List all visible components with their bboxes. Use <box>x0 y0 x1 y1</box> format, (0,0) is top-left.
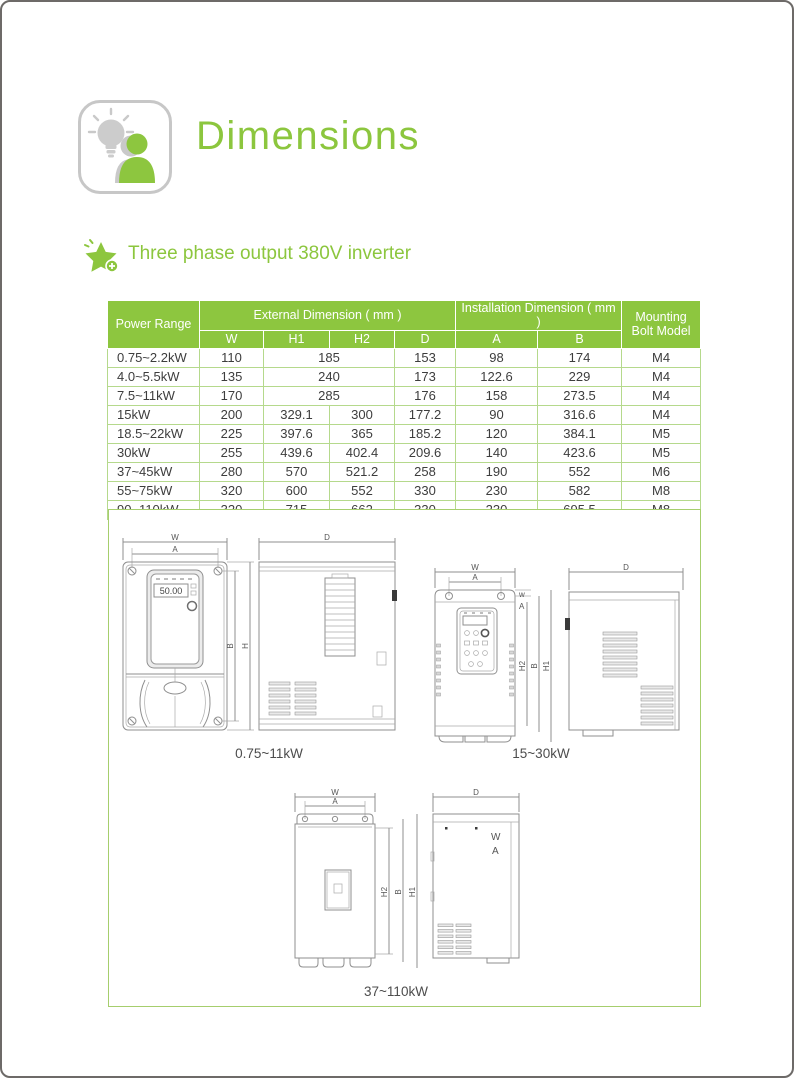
col-header-power-range: Power Range <box>108 301 200 349</box>
cell-power: 15kW <box>108 405 200 424</box>
dim-label-h1: H1 <box>408 886 417 897</box>
cell-power: 4.0~5.5kW <box>108 367 200 386</box>
cell-d: 330 <box>395 481 456 500</box>
cell-bolt: M4 <box>622 367 701 386</box>
dim-label-a: A <box>472 573 478 582</box>
dim-label-w: W <box>331 788 339 797</box>
drawing-medium-side-view: D <box>565 566 691 748</box>
drawing-label-medium: 15~30kW <box>431 746 651 761</box>
dim-label-b: B <box>394 889 403 894</box>
cell-w: 135 <box>200 367 264 386</box>
cell-bolt: M5 <box>622 443 701 462</box>
cell-h1: 329.1 <box>264 405 330 424</box>
cell-b: 552 <box>538 462 622 481</box>
dim-label-d: D <box>623 563 629 572</box>
dim-label-small-a: A <box>519 602 525 611</box>
cell-a: 122.6 <box>456 367 538 386</box>
cell-power: 7.5~11kW <box>108 386 200 405</box>
cell-b: 273.5 <box>538 386 622 405</box>
col-header-h2: H2 <box>330 330 395 348</box>
cell-b: 174 <box>538 348 622 367</box>
dim-label-small-w: w <box>518 590 525 599</box>
cell-a: 158 <box>456 386 538 405</box>
col-group-external: External Dimension ( mm ) <box>200 301 456 331</box>
dim-label-h: H <box>241 643 250 649</box>
table-row: 0.75~2.2kW 110 185 153 98 174 M4 <box>108 348 701 367</box>
header-pictogram-box <box>78 100 172 194</box>
cell-b: 582 <box>538 481 622 500</box>
table-row: 15kW 200 329.1 300 177.2 90 316.6 M4 <box>108 405 701 424</box>
cell-h2: 402.4 <box>330 443 395 462</box>
drawings-panel: W A 50.00 <box>108 509 701 1007</box>
table-row: 30kW 255 439.6 402.4 209.6 140 423.6 M5 <box>108 443 701 462</box>
side-text-a: A <box>492 846 499 857</box>
cell-a: 98 <box>456 348 538 367</box>
drawing-small-side-view: D <box>259 534 399 748</box>
cell-b: 316.6 <box>538 405 622 424</box>
cell-d: 258 <box>395 462 456 481</box>
cell-d: 177.2 <box>395 405 456 424</box>
table-row: 18.5~22kW 225 397.6 365 185.2 120 384.1 … <box>108 424 701 443</box>
cell-d: 173 <box>395 367 456 386</box>
dim-label-w: W <box>471 563 479 572</box>
cell-h-merged: 285 <box>264 386 395 405</box>
cell-h2: 552 <box>330 481 395 500</box>
dim-label-b: B <box>530 663 539 668</box>
cell-w: 110 <box>200 348 264 367</box>
cell-h1: 397.6 <box>264 424 330 443</box>
cell-bolt: M5 <box>622 424 701 443</box>
cell-d: 209.6 <box>395 443 456 462</box>
drawing-label-small: 0.75~11kW <box>109 746 429 761</box>
keypad-knob <box>481 629 488 636</box>
cell-h2: 521.2 <box>330 462 395 481</box>
cell-d: 153 <box>395 348 456 367</box>
dim-label-h1: H1 <box>542 660 551 671</box>
cell-w: 280 <box>200 462 264 481</box>
cell-bolt: M4 <box>622 386 701 405</box>
cell-bolt: M4 <box>622 348 701 367</box>
col-header-mounting: Mounting Bolt Model <box>622 301 701 349</box>
cell-bolt: M4 <box>622 405 701 424</box>
keypad-display-value: 50.00 <box>160 586 183 596</box>
table-row: 37~45kW 280 570 521.2 258 190 552 M6 <box>108 462 701 481</box>
dim-label-d: D <box>324 533 330 542</box>
cell-h2: 300 <box>330 405 395 424</box>
lightbulb-icon <box>98 120 125 147</box>
cell-a: 190 <box>456 462 538 481</box>
cell-w: 255 <box>200 443 264 462</box>
dim-label-d: D <box>473 788 479 797</box>
cell-power: 18.5~22kW <box>108 424 200 443</box>
cell-h1: 439.6 <box>264 443 330 462</box>
table-row: 4.0~5.5kW 135 240 173 122.6 229 M4 <box>108 367 701 386</box>
cell-w: 170 <box>200 386 264 405</box>
cell-bolt: M6 <box>622 462 701 481</box>
col-header-w: W <box>200 330 264 348</box>
dim-label-h2: H2 <box>380 886 389 897</box>
cell-h-merged: 240 <box>264 367 395 386</box>
cell-a: 230 <box>456 481 538 500</box>
dim-label-h2: H2 <box>518 660 527 671</box>
cell-h1: 600 <box>264 481 330 500</box>
side-latch <box>392 590 397 601</box>
cell-power: 30kW <box>108 443 200 462</box>
col-group-installation: Installation Dimension ( mm ) <box>456 301 622 331</box>
cell-w: 200 <box>200 405 264 424</box>
cell-b: 229 <box>538 367 622 386</box>
col-header-d: D <box>395 330 456 348</box>
cell-w: 225 <box>200 424 264 443</box>
dim-label-b: B <box>226 643 235 648</box>
table-row: 7.5~11kW 170 285 176 158 273.5 M4 <box>108 386 701 405</box>
drawing-large-side-view: D W A <box>431 792 533 994</box>
cell-a: 140 <box>456 443 538 462</box>
drawing-small-front-view: W A 50.00 <box>123 534 259 748</box>
drawing-medium-front-view: W A <box>435 566 559 748</box>
cell-h1: 570 <box>264 462 330 481</box>
dimensions-table: Power Range External Dimension ( mm ) In… <box>107 300 701 520</box>
cell-w: 320 <box>200 481 264 500</box>
section-heading: Three phase output 380V inverter <box>128 243 411 265</box>
cell-d: 176 <box>395 386 456 405</box>
side-text-w: W <box>491 832 501 843</box>
cell-bolt: M8 <box>622 481 701 500</box>
side-latch <box>565 618 570 630</box>
cell-a: 90 <box>456 405 538 424</box>
star-plus-icon <box>82 238 122 274</box>
cell-b: 423.6 <box>538 443 622 462</box>
cell-power: 55~75kW <box>108 481 200 500</box>
table-row: 55~75kW 320 600 552 330 230 582 M8 <box>108 481 701 500</box>
cell-b: 384.1 <box>538 424 622 443</box>
col-header-b: B <box>538 330 622 348</box>
cell-h2: 365 <box>330 424 395 443</box>
col-header-a: A <box>456 330 538 348</box>
dim-label-a: A <box>332 797 338 806</box>
drawing-label-large: 37~110kW <box>286 984 506 999</box>
page-title: Dimensions <box>196 114 420 159</box>
col-header-h1: H1 <box>264 330 330 348</box>
drawing-large-front-view: W A H2 B H1 <box>295 792 427 994</box>
cell-power: 0.75~2.2kW <box>108 348 200 367</box>
dim-label-w: W <box>171 533 179 542</box>
cell-power: 37~45kW <box>108 462 200 481</box>
dim-label-a: A <box>172 545 178 554</box>
cell-h-merged: 185 <box>264 348 395 367</box>
bulb-person-icon <box>81 103 169 191</box>
cell-a: 120 <box>456 424 538 443</box>
cell-d: 185.2 <box>395 424 456 443</box>
